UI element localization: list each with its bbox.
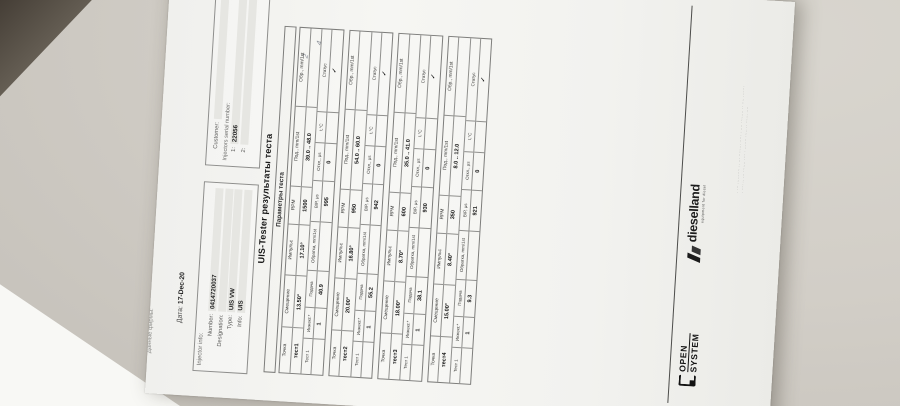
dieselland-logo-text: dieselland equipment for diesel bbox=[686, 184, 707, 243]
cell-delivery: 38.1 bbox=[414, 277, 427, 316]
cell-backflow bbox=[367, 226, 380, 275]
open-system-logo-icon bbox=[679, 375, 697, 387]
table-corner-shadow bbox=[0, 0, 112, 112]
cell-bip: 921 bbox=[469, 190, 482, 232]
dieselland-logo-icon bbox=[685, 245, 701, 262]
cell-injector: 1 bbox=[314, 309, 326, 341]
cell-deviation: 0 bbox=[323, 143, 336, 182]
date-line: Дата: 17-Dec-20 bbox=[176, 272, 186, 323]
cell-injector: 1 bbox=[412, 315, 424, 347]
cell-backflow bbox=[466, 232, 479, 281]
open-system-logo-text: OPEN SYSTEM bbox=[678, 333, 700, 373]
customer-box: Customer: Injectors serial number: 1: 22… bbox=[205, 0, 271, 169]
cell-blank bbox=[460, 349, 473, 384]
cell-blank bbox=[311, 340, 324, 375]
field-label: Customer: bbox=[212, 119, 220, 160]
open-system-logo: OPEN SYSTEM bbox=[677, 333, 700, 387]
cell-temp bbox=[375, 116, 387, 148]
cell-bip: 995 bbox=[321, 181, 334, 223]
footer-logos: OPEN SYSTEM dieselland equipment for die… bbox=[677, 6, 720, 386]
cell-temp bbox=[474, 122, 486, 154]
cell-deviation: 0 bbox=[373, 146, 386, 185]
field-label: Info: bbox=[234, 313, 243, 368]
cell-injector: 1 bbox=[462, 318, 474, 350]
cell-bip: 930 bbox=[420, 187, 433, 229]
report-sheet: Данные фирмы: Дата: 17-Dec-20 Injector i… bbox=[145, 0, 795, 406]
cell-backflow bbox=[318, 223, 331, 272]
cell-blank bbox=[410, 346, 423, 381]
cell-deviation: 0 bbox=[471, 153, 484, 192]
cell-blank bbox=[361, 343, 374, 378]
cell-delivery: 9.3 bbox=[464, 280, 477, 319]
cell-deviation: 0 bbox=[422, 150, 435, 189]
date-value: 17-Dec-20 bbox=[177, 272, 186, 304]
cell-backflow bbox=[417, 229, 430, 278]
field-label: Type: bbox=[225, 312, 234, 367]
cell-delivery: 55.2 bbox=[365, 274, 378, 313]
open-system-line2: SYSTEM bbox=[689, 333, 700, 372]
injector-info-box: Injector info: Number: 0414720037 Design… bbox=[192, 181, 258, 374]
cell-temp bbox=[424, 119, 436, 151]
cell-injector: 1 bbox=[363, 312, 375, 344]
test-blocks: Точка Смещение Импульс RPM Под., mm/1st … bbox=[278, 27, 497, 385]
date-label: Дата: bbox=[176, 306, 184, 323]
cell-bip: 942 bbox=[370, 184, 383, 226]
field-label: Number: bbox=[206, 311, 215, 366]
photo-of-test-report: Данные фирмы: Дата: 17-Dec-20 Injector i… bbox=[0, 0, 900, 406]
field-label: 2: bbox=[240, 145, 247, 162]
fine-print: · ··· ·········· ·· ··· ········ ····· ·… bbox=[735, 3, 757, 193]
field-label: 1: bbox=[230, 144, 237, 161]
field-label: Designation: bbox=[215, 311, 224, 366]
cell-delivery: 40.9 bbox=[315, 271, 328, 310]
cell-temp bbox=[326, 112, 338, 144]
dieselland-logo: dieselland equipment for diesel bbox=[685, 184, 707, 262]
company-field-label: Данные фирмы: bbox=[146, 308, 155, 353]
